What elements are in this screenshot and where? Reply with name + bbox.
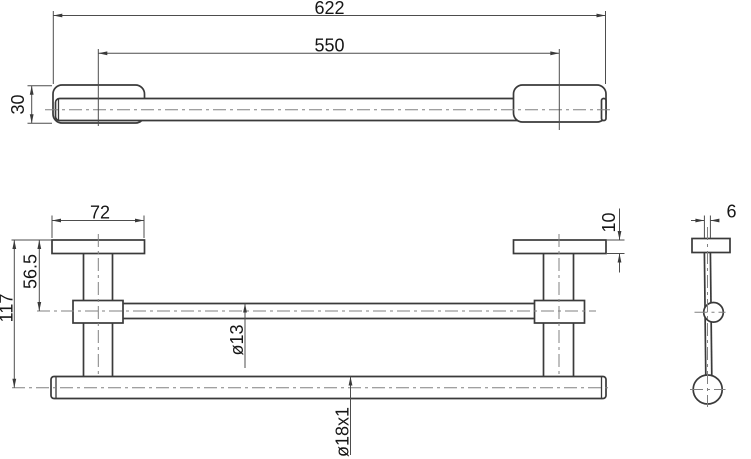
dim-mount-spacing-label: 550 [314,36,344,56]
dim-plate-width: 72 [52,203,144,239]
dim-plate-thickness-label: 10 [599,212,619,232]
technical-drawing-svg: 622 550 30 [0,0,751,459]
right-wall-plate [514,240,607,254]
side-wall-plate [692,239,730,253]
drawing-page: 622 550 30 [0,0,751,459]
dim-overall-height: 117 [0,240,17,388]
dim-upper-rail-offset-label: 56.5 [21,254,41,289]
dim-upper-rail-diameter-label: ø13 [227,324,247,355]
side-view: 6 [690,202,737,408]
dim-stem-width: 6 [691,202,737,239]
dim-bar-tube-diameter-label: ø18x1 [333,407,353,457]
dim-plate-depth-label: 30 [8,94,28,114]
dim-upper-rail-diameter: ø13 [227,304,247,369]
top-view: 622 550 30 [8,0,612,130]
dim-overall-height-label: 117 [0,294,17,323]
dim-overall-length-label: 622 [314,0,344,18]
dim-upper-rail-offset: 56.5 [12,240,53,311]
dim-plate-depth: 30 [8,86,52,124]
front-view: 72 10 56.5 117 ø13 [0,203,625,458]
dim-stem-width-label: 6 [726,202,736,222]
dim-plate-width-label: 72 [90,203,110,223]
